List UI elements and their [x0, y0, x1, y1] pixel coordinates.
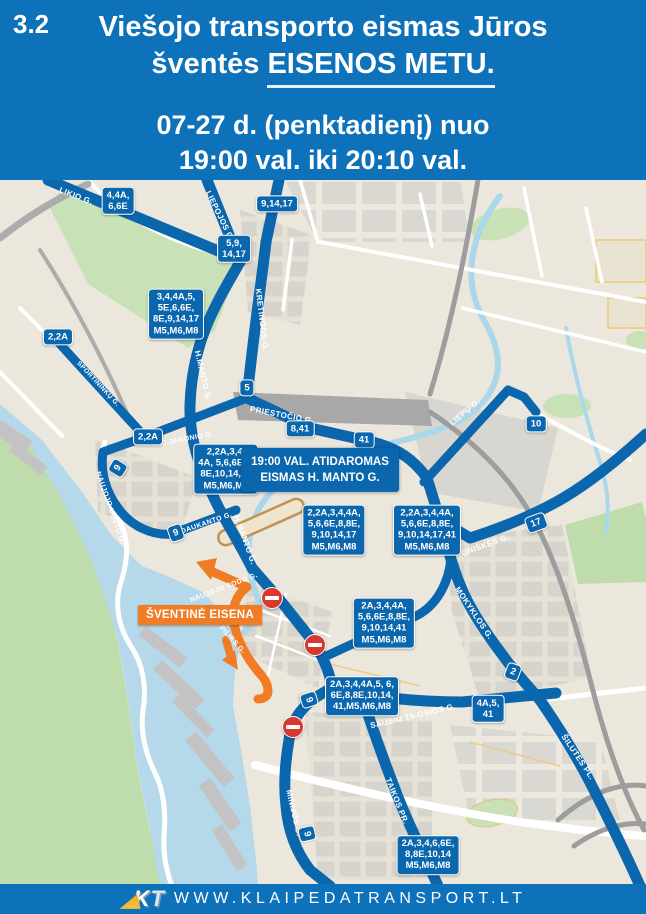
- website-url: WWW.KLAIPEDATRANSPORT.LT: [174, 890, 526, 908]
- route-badge: 9,14,17: [256, 195, 298, 212]
- route-badge: 2A,3,4,6,6E, 8,8E,10,14 M5,M6,M8: [397, 835, 460, 875]
- logo-letter-t: T: [150, 889, 163, 909]
- procession-label: ŠVENTINĖ EISENA: [138, 605, 262, 625]
- street-label: ŠILUTĖS PL.: [559, 733, 596, 782]
- street-label: JONIŠKĖS G.: [455, 532, 510, 559]
- title-underlined-text: EISENOS METU.: [267, 48, 494, 88]
- route-badge: 5,9, 14,17: [217, 235, 251, 263]
- route-badge: 41: [354, 431, 375, 448]
- page-title: Viešojo transporto eismas Jūros šventės …: [0, 0, 646, 178]
- route-badge: 9: [297, 825, 317, 844]
- route-badge: 9: [107, 457, 130, 479]
- route-badge: 10: [526, 415, 547, 432]
- route-badge: 2: [503, 661, 523, 682]
- route-badge: 3,4,4A,5, 5E,6,6E, 8E,9,14,17 M5,M6,M8: [148, 289, 204, 340]
- street-label: NAUJOJO SODO G.: [189, 572, 258, 604]
- route-badge: 9: [298, 690, 319, 710]
- street-label: TAIKOS PR.: [384, 777, 411, 826]
- street-label: MOKYKLOS G.: [453, 585, 495, 641]
- map-overlay: LIKIO G.LIEPOJOS G.KRETINGOS G.H.MANTO G…: [0, 180, 646, 886]
- notice-line1: 19:00 VAL. ATIDAROMAS: [251, 454, 389, 470]
- kt-logo: KT: [120, 889, 164, 909]
- street-label: SPORTININKŲ G.: [75, 360, 120, 408]
- section-number: 3.2: [13, 9, 49, 40]
- street-label: KRETINGOS G.: [254, 288, 271, 352]
- road-open-notice: 19:00 VAL. ATIDAROMAS EISMAS H. MANTO G.: [241, 448, 399, 492]
- logo-wedge-icon: [120, 894, 141, 909]
- route-badge: 2A,3,4,4A, 5,6,6E,8,8E, 9,10,14,41 M5,M6…: [353, 598, 415, 649]
- street-label: NAUJOJO UOSTO G.: [94, 471, 125, 545]
- schedule: 07-27 d. (penktadienį) nuo 19:00 val. ik…: [0, 108, 646, 178]
- route-badge: 4A,5, 41: [472, 695, 505, 723]
- street-label: PILIES G.: [218, 625, 247, 656]
- schedule-line2: 19:00 val. iki 20:10 val.: [0, 143, 646, 178]
- route-badge: 5: [239, 379, 254, 396]
- schedule-line1: 07-27 d. (penktadienį) nuo: [0, 108, 646, 143]
- map: LIKIO G.LIEPOJOS G.KRETINGOS G.H.MANTO G…: [0, 180, 646, 886]
- route-badge: 2A,3,4,4A,5, 6, 6E,8,8E,10,14, 41,M5,M6,…: [325, 676, 399, 716]
- route-badge: 2,2A,3,4,4A, 5,6,6E,8,8E, 9,10,14,17,41 …: [393, 505, 461, 556]
- route-badge: 2,2A,3,4,4A, 5,6,6E,8,8E, 9,10,14,17 M5,…: [302, 505, 365, 556]
- street-label: LIKIO G.: [58, 185, 94, 206]
- route-badge: 2,2A: [133, 428, 163, 445]
- notice-line2: EISMAS H. MANTO G.: [251, 470, 389, 486]
- route-badge: 4,4A, 6,6E: [102, 187, 135, 215]
- route-badge: 2,2A: [43, 328, 73, 345]
- street-label: H.MANTO G.: [232, 514, 258, 566]
- route-badge: 8,41: [286, 420, 315, 437]
- street-label: H.MANTO G.: [193, 350, 213, 403]
- footer: KT WWW.KLAIPEDATRANSPORT.LT: [0, 884, 646, 914]
- title-line1: Viešojo transporto eismas Jūros: [0, 10, 646, 45]
- route-badge: 17: [523, 511, 548, 534]
- route-badge: 9: [166, 522, 186, 543]
- header: 3.2 Viešojo transporto eismas Jūros šven…: [0, 0, 646, 180]
- title-line2-prefix: šventės: [151, 48, 267, 80]
- no-entry-icon: [261, 587, 283, 609]
- title-line2: šventės EISENOS METU.: [0, 47, 646, 82]
- no-entry-icon: [304, 634, 326, 656]
- no-entry-icon: [282, 716, 304, 738]
- street-label: LIEPŲ G.: [448, 397, 482, 428]
